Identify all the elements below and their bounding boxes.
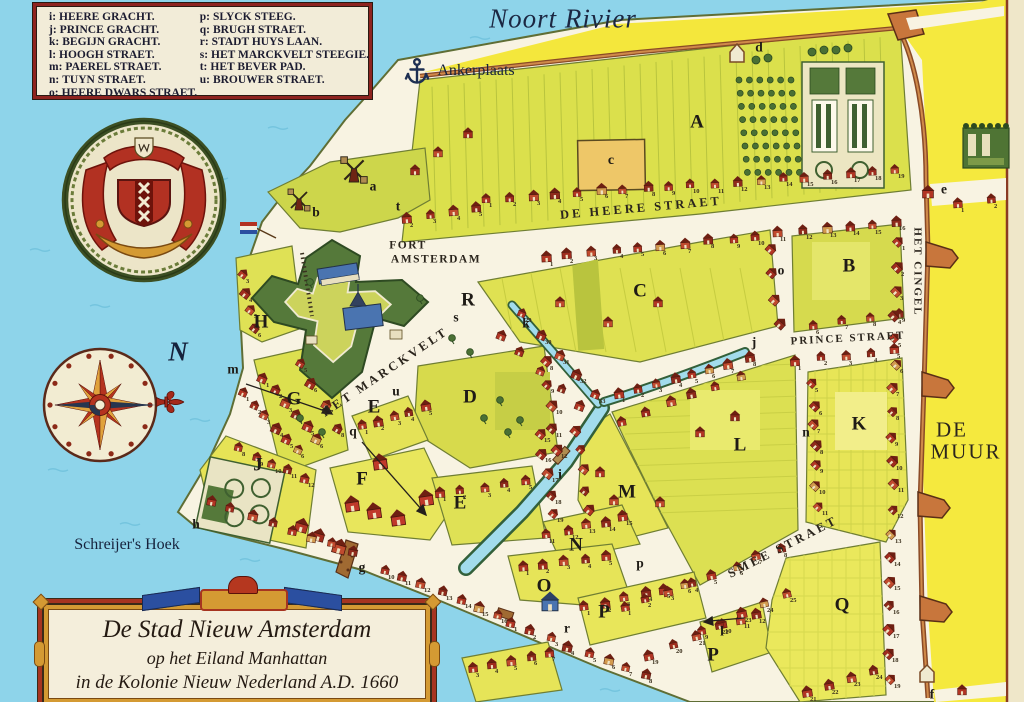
legend-box: i:HEERE GRACHT.j:PRINCE GRACHT.k:BEGIJN …: [33, 3, 372, 99]
legend-key: j:: [49, 24, 57, 36]
legend-street-name: TUYN STRAET.: [62, 74, 146, 86]
svg-text:25: 25: [790, 597, 797, 604]
svg-text:12: 12: [806, 234, 813, 241]
fort-church: [343, 304, 383, 330]
svg-text:16: 16: [893, 609, 900, 616]
cartouche-side-curl: [429, 641, 440, 667]
svg-text:24: 24: [767, 607, 774, 614]
svg-text:14: 14: [609, 526, 616, 533]
svg-text:15: 15: [894, 585, 901, 592]
legend-entry-p: p:SLYCK STEEG.: [200, 11, 369, 24]
ornament-right-ribbon: [284, 587, 342, 611]
svg-text:2: 2: [570, 258, 573, 265]
svg-text:21: 21: [810, 696, 817, 702]
legend-key: q:: [200, 24, 210, 36]
svg-text:13: 13: [830, 232, 837, 239]
legend-entry-n: n:TUYN STRAET.: [49, 74, 200, 87]
svg-text:11: 11: [780, 236, 786, 243]
legend-key: u:: [200, 74, 210, 86]
svg-text:13: 13: [764, 184, 771, 191]
svg-text:1: 1: [587, 610, 590, 617]
legend-street-name: HOOGH STRAET.: [59, 49, 155, 61]
svg-text:14: 14: [465, 603, 472, 610]
legend-street-name: SLYCK STEEG.: [213, 11, 296, 23]
svg-text:13: 13: [589, 528, 596, 535]
svg-text:2: 2: [824, 360, 827, 367]
cartouche-subtitle: op het Eiland Manhattan: [42, 648, 432, 669]
legend-street-name: PAEREL STRAET.: [65, 61, 161, 73]
svg-text:22: 22: [832, 689, 839, 696]
svg-text:23: 23: [854, 681, 861, 688]
svg-text:23: 23: [745, 617, 752, 624]
legend-street-name: HET BEVER PAD.: [210, 61, 305, 73]
svg-text:18: 18: [892, 657, 899, 664]
svg-text:21: 21: [699, 640, 706, 647]
svg-text:1: 1: [628, 610, 631, 617]
ornament-left-ribbon: [142, 587, 200, 611]
svg-text:10: 10: [819, 489, 826, 496]
svg-text:2: 2: [901, 271, 904, 278]
svg-text:1: 1: [246, 396, 249, 403]
svg-text:11: 11: [291, 473, 297, 480]
svg-text:1: 1: [550, 261, 553, 268]
legend-key: l:: [49, 49, 56, 61]
svg-text:1: 1: [798, 365, 801, 372]
svg-text:16: 16: [545, 457, 552, 464]
svg-text:16: 16: [501, 618, 508, 625]
northeast-garden: [963, 128, 1009, 168]
legend-key: k:: [49, 36, 59, 48]
svg-text:32: 32: [580, 378, 587, 385]
svg-text:14: 14: [786, 181, 793, 188]
legend-key: m:: [49, 61, 62, 73]
svg-text:2: 2: [533, 634, 536, 641]
new-amsterdam-map: 1234567891011121314151617181912345678910…: [0, 0, 1024, 702]
svg-text:30: 30: [545, 339, 552, 346]
svg-text:17: 17: [552, 477, 559, 484]
svg-text:2: 2: [381, 425, 384, 432]
title-cartouche: De Stad Nieuw Amsterdam op het Eiland Ma…: [38, 599, 436, 702]
svg-text:1: 1: [902, 245, 905, 252]
svg-text:2: 2: [258, 409, 261, 416]
svg-text:2: 2: [410, 222, 413, 229]
svg-text:14: 14: [853, 230, 860, 237]
svg-text:2: 2: [994, 203, 997, 210]
cartouche-side-curl: [34, 641, 45, 667]
legend-column-right: p:SLYCK STEEG.q:BRUGH STRAET.r:STADT HUY…: [200, 11, 369, 96]
svg-text:1: 1: [514, 626, 517, 633]
svg-text:17: 17: [854, 177, 861, 184]
svg-text:13: 13: [895, 538, 902, 545]
seal-monogram-shield: [135, 138, 153, 158]
legend-entry-t: t:HET BEVER PAD.: [200, 61, 369, 74]
svg-text:13: 13: [446, 595, 453, 602]
svg-text:19: 19: [557, 517, 564, 524]
legend-entry-q: q:BRUGH STRAET.: [200, 24, 369, 37]
svg-text:2: 2: [648, 602, 651, 609]
svg-text:10: 10: [693, 188, 700, 195]
svg-text:12: 12: [741, 186, 748, 193]
svg-text:20: 20: [676, 648, 683, 655]
svg-text:14: 14: [894, 561, 901, 568]
svg-text:1: 1: [489, 202, 492, 209]
city-seal: [65, 121, 223, 279]
svg-text:11: 11: [744, 623, 750, 630]
legend-entry-r: r:STADT HUYS LAAN.: [200, 36, 369, 49]
svg-text:12: 12: [424, 587, 431, 594]
svg-text:1: 1: [526, 570, 529, 577]
legend-street-name: HET MARCKVELT STEEGIE.: [211, 49, 369, 61]
svg-text:31: 31: [563, 359, 570, 366]
svg-text:10: 10: [388, 574, 395, 581]
svg-text:29: 29: [525, 317, 532, 324]
ornament-crest: [228, 576, 258, 594]
legend-key: i:: [49, 11, 56, 23]
svg-text:11: 11: [556, 432, 562, 439]
svg-text:12: 12: [572, 534, 579, 541]
legend-key: t:: [200, 61, 208, 73]
svg-text:18: 18: [555, 499, 562, 506]
legend-entry-i: i:HEERE GRACHT.: [49, 11, 200, 24]
svg-text:15: 15: [482, 611, 489, 618]
legend-column-left: i:HEERE GRACHT.j:PRINCE GRACHT.k:BEGIJN …: [49, 11, 200, 96]
svg-text:15: 15: [626, 520, 633, 527]
svg-text:12: 12: [308, 482, 315, 489]
legend-entry-o: o:HEERE DWARS STRAET.: [49, 87, 200, 100]
svg-text:1: 1: [266, 382, 269, 389]
legend-key: n:: [49, 74, 59, 86]
svg-text:10: 10: [758, 240, 765, 247]
legend-street-name: STADT HUYS LAAN.: [212, 36, 322, 48]
legend-key: r:: [200, 36, 209, 48]
svg-text:2: 2: [513, 201, 516, 208]
svg-text:11: 11: [898, 487, 904, 494]
legend-street-name: BROUWER STRAET.: [213, 74, 325, 86]
legend-key: p:: [200, 11, 210, 23]
svg-text:10: 10: [556, 409, 563, 416]
svg-text:19: 19: [898, 173, 905, 180]
svg-text:12: 12: [561, 453, 568, 460]
svg-text:15: 15: [875, 229, 882, 236]
svg-text:19: 19: [652, 659, 659, 666]
svg-text:18: 18: [875, 175, 882, 182]
svg-text:11: 11: [822, 510, 828, 517]
svg-text:11: 11: [718, 188, 724, 195]
svg-text:17: 17: [893, 633, 900, 640]
svg-text:11: 11: [549, 538, 555, 545]
legend-entry-u: u:BROUWER STRAET.: [200, 74, 369, 87]
cartouche-title: De Stad Nieuw Amsterdam: [42, 616, 432, 644]
svg-text:16: 16: [831, 179, 838, 186]
svg-text:1: 1: [961, 207, 964, 214]
svg-text:12: 12: [897, 513, 904, 520]
map-margin: [1008, 0, 1024, 702]
svg-text:2: 2: [641, 392, 644, 399]
svg-text:19: 19: [894, 683, 901, 690]
legend-entry-m: m:PAEREL STRAET.: [49, 61, 200, 74]
svg-text:22: 22: [722, 629, 729, 636]
svg-text:1: 1: [365, 429, 368, 436]
legend-key: s:: [200, 49, 208, 61]
svg-text:33: 33: [599, 398, 606, 405]
legend-street-name: BRUGH STRAET.: [213, 24, 306, 36]
svg-text:12: 12: [759, 618, 766, 625]
cartouche-subtitle-2: in de Kolonie Nieuw Nederland A.D. 1660: [42, 672, 432, 694]
legend-street-name: PRINCE GRACHT.: [60, 24, 159, 36]
svg-text:10: 10: [275, 468, 282, 475]
legend-entry-s: s:HET MARCKVELT STEEGIE.: [200, 49, 369, 62]
svg-text:1: 1: [443, 496, 446, 503]
svg-text:1: 1: [622, 397, 625, 404]
svg-text:15: 15: [544, 437, 551, 444]
legend-entry-l: l:HOOGH STRAET.: [49, 49, 200, 62]
svg-text:10: 10: [896, 465, 903, 472]
legend-street-name: HEERE GRACHT.: [59, 11, 155, 23]
legend-entry-k: k:BEGIJN GRACHT.: [49, 36, 200, 49]
legend-key: o:: [49, 87, 59, 99]
svg-text:2: 2: [546, 568, 549, 575]
church-block: [578, 139, 646, 190]
legend-entry-j: j:PRINCE GRACHT.: [49, 24, 200, 37]
svg-text:15: 15: [807, 181, 814, 188]
svg-text:2: 2: [463, 494, 466, 501]
legend-street-name: HEERE DWARS STRAET.: [62, 87, 198, 99]
svg-text:11: 11: [405, 580, 411, 587]
legend-street-name: BEGIJN GRACHT.: [62, 36, 160, 48]
svg-text:24: 24: [876, 674, 883, 681]
svg-text:16: 16: [899, 225, 906, 232]
cartouche-ornament: [142, 585, 342, 609]
svg-text:2: 2: [608, 607, 611, 614]
